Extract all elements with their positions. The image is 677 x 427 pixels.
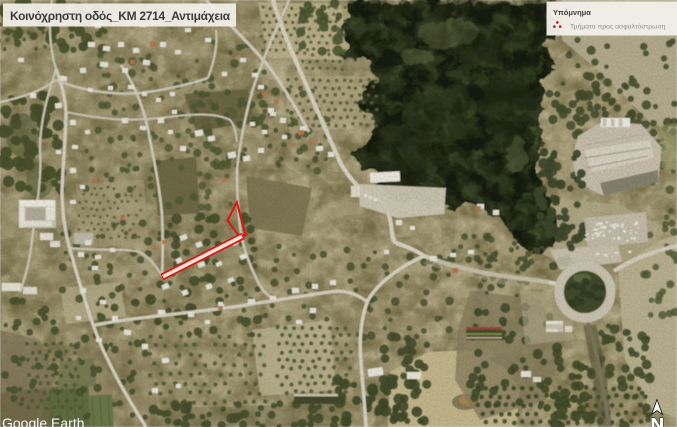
svg-text:Google Earth: Google Earth [2,415,85,427]
svg-text:Τμήματα προς ασφαλτόστρωση: Τμήματα προς ασφαλτόστρωση [570,23,666,31]
svg-text:Κοινόχρηστη οδός_ΚΜ 2714_Αντιμ: Κοινόχρηστη οδός_ΚΜ 2714_Αντιμάχεια [10,9,231,23]
svg-text:Υπόμνημα: Υπόμνημα [553,8,591,17]
